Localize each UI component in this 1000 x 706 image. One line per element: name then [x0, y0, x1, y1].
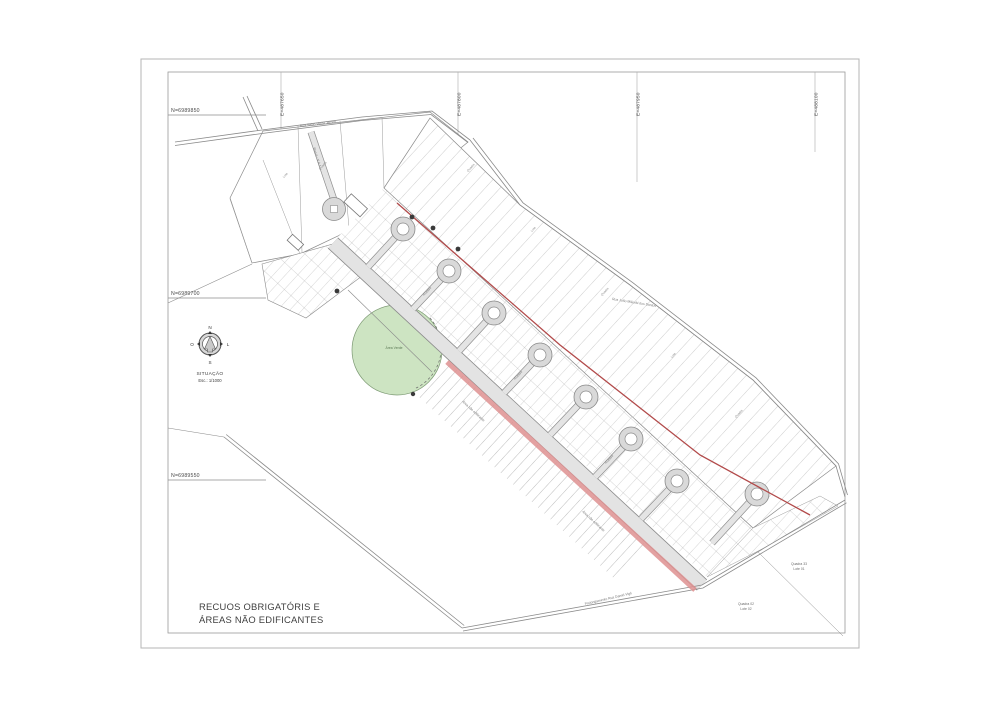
tower-marker-icon: [411, 392, 415, 396]
compass-rose: N L S O SITUAÇÃO Esc.: 1/1000: [190, 325, 230, 383]
compass-letter-o: O: [190, 342, 194, 347]
plan-sheet: E=487650 E=487800 E=487950 E=488100 N=69…: [0, 0, 1000, 706]
cul-de-sac-bulb: [574, 385, 598, 409]
cul-de-sac-bulb: [482, 301, 506, 325]
compass-point-east: [220, 342, 223, 346]
situacao-caption: SITUAÇÃO: [197, 370, 224, 377]
east-coordinate-label: E=487800: [457, 92, 463, 116]
north-coordinate-label: N=6989850: [171, 108, 200, 114]
sw-boundary-road-inner: [226, 435, 464, 626]
compass-point-south: [208, 354, 212, 357]
lote-label: Lote 02: [740, 607, 751, 611]
scale-caption: Esc.: 1/1000: [198, 378, 222, 383]
tower-marker-icon: [335, 289, 340, 294]
cul-de-sac-bulb: [619, 427, 643, 451]
cul-de-sac-bulb: [528, 343, 552, 367]
site-plan-drawing: E=487650 E=487800 E=487950 E=488100 N=69…: [0, 0, 1000, 706]
green-park-area: Área Verde: [352, 305, 442, 395]
top-left-road: [243, 97, 258, 131]
left-approach-line-2: [168, 264, 252, 303]
sheet-title-block: RECUOS OBRIGATÓRIS E ÁREAS NÃO EDIFICANT…: [199, 601, 324, 625]
east-coordinate-label: E=488100: [814, 92, 820, 116]
left-approach-line: [168, 428, 224, 437]
east-coordinate-label: E=487950: [636, 92, 642, 116]
quadra-label: Quadra 33: [791, 562, 807, 566]
north-coordinate-label: N=6989700: [171, 291, 200, 297]
quadra-label: Quadra 02: [738, 602, 754, 606]
compass-point-west: [197, 342, 200, 346]
compass-letter-l: L: [227, 342, 230, 347]
cul-de-sac-bulb: [323, 198, 346, 221]
tower-marker-icon: [456, 247, 461, 252]
north-coordinate-label: N=6989550: [171, 473, 200, 479]
cul-de-sac-bulb: [391, 217, 415, 241]
tower-marker-icon: [431, 226, 436, 231]
compass-letter-s: S: [208, 360, 211, 365]
park-shape: [352, 305, 442, 395]
sw-boundary-road: [224, 437, 462, 628]
park-label: Área Verde: [386, 346, 403, 350]
sheet-title-line1: RECUOS OBRIGATÓRIS E: [199, 601, 320, 612]
compass-point-north: [208, 331, 212, 334]
cul-de-sac-bulb: [665, 469, 689, 493]
tower-marker-icon: [410, 215, 415, 220]
east-coordinate-label: E=487650: [280, 92, 286, 116]
sheet-title-line2: ÁREAS NÃO EDIFICANTES: [199, 614, 324, 625]
compass-letter-n: N: [208, 325, 211, 330]
lote-label: Lote 01: [793, 567, 804, 571]
quadra-lote-labels: Quadra 33 Lote 01 Quadra 02 Lote 02: [738, 562, 807, 611]
cul-de-sac-bulb: [437, 259, 461, 283]
